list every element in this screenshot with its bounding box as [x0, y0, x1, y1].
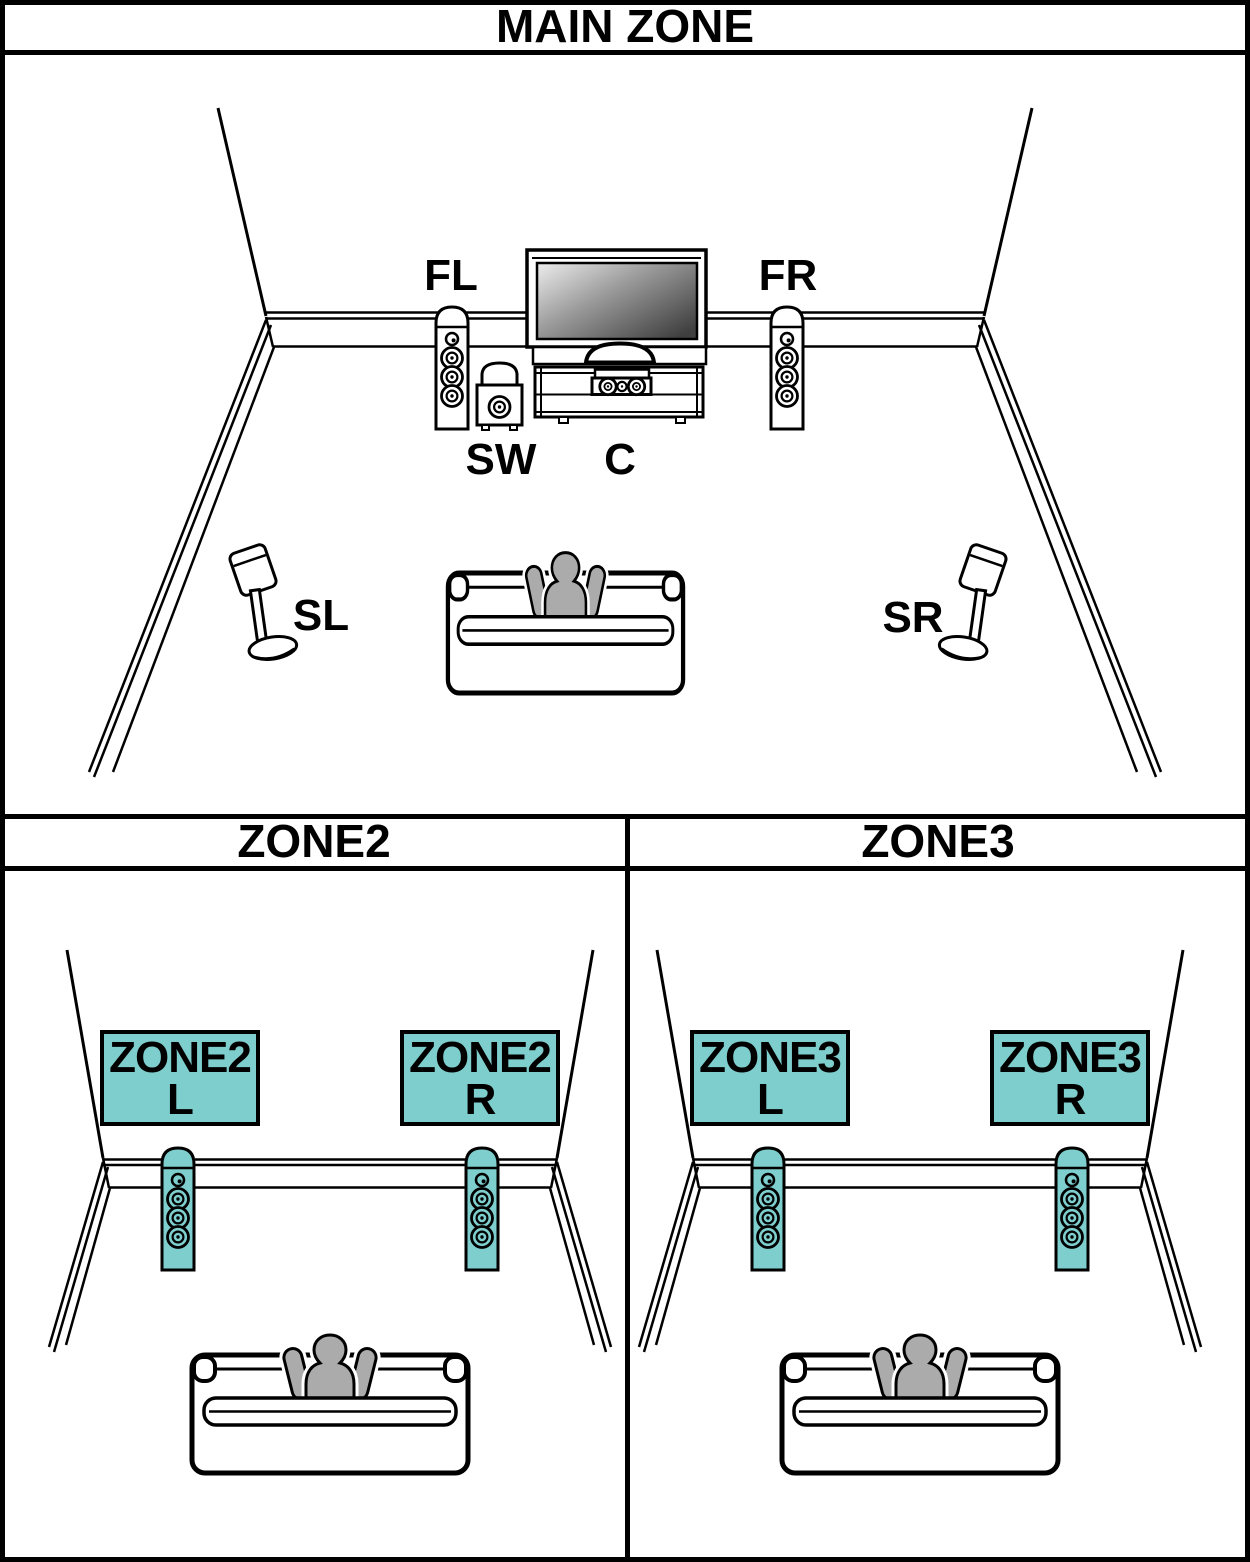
tv	[527, 250, 706, 364]
surround-left-label: SL	[293, 591, 349, 640]
surround-left-speaker	[228, 543, 298, 662]
front-left-speaker	[436, 307, 468, 429]
subwoofer-label: SW	[466, 435, 537, 484]
speaker-configuration-diagram: FL FR SW C SL SR ZONE2 L ZONE2 R ZONE3 L…	[0, 0, 1250, 1562]
zone3-panel: ZONE3 L ZONE3 R	[639, 950, 1201, 1473]
panel-frame	[0, 3, 1250, 1562]
zone2-left-box-line2: L	[167, 1075, 193, 1124]
zone2-room	[49, 950, 611, 1473]
center-label: C	[604, 435, 636, 484]
zone3-left-box-line2: L	[757, 1075, 783, 1124]
subwoofer	[477, 363, 522, 430]
front-right-speaker	[771, 307, 803, 429]
tv-rack	[535, 367, 703, 423]
main-zone-title: MAIN ZONE	[496, 0, 754, 52]
zone2-title: ZONE2	[237, 815, 390, 867]
tv-screen	[537, 263, 697, 339]
tv-stand-foot	[586, 344, 654, 363]
zone3-title: ZONE3	[861, 815, 1014, 867]
surround-right-speaker	[938, 543, 1008, 662]
surround-right-label: SR	[882, 593, 943, 642]
center-speaker	[592, 370, 651, 395]
zone2-right-box-line2: R	[465, 1075, 496, 1124]
main-zone-panel: FL FR SW C SL SR	[89, 108, 1161, 777]
zone3-room	[639, 950, 1201, 1473]
zone3-right-box-line2: R	[1055, 1075, 1086, 1124]
main-zone-sofa	[448, 553, 683, 693]
front-left-label: FL	[424, 251, 478, 300]
front-right-label: FR	[759, 251, 818, 300]
zone2-panel: ZONE2 L ZONE2 R	[49, 950, 611, 1473]
